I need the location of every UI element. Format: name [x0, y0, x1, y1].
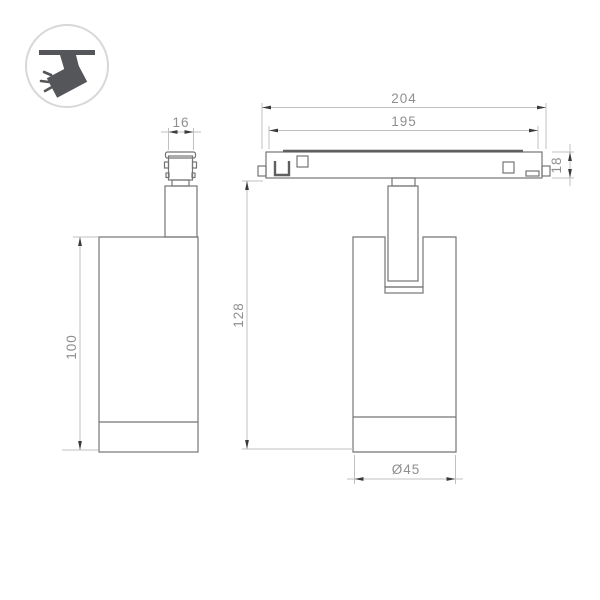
dim-body-height: 100 [62, 237, 98, 450]
fork-yoke [385, 287, 423, 293]
arrowhead [245, 440, 249, 449]
dim-track-depth: 16 [161, 115, 201, 150]
logo-badge [26, 25, 108, 107]
dim-label: 195 [391, 114, 417, 129]
hole-left [297, 156, 308, 167]
spring-clip [275, 161, 289, 175]
arrowhead [269, 129, 278, 133]
dim-label: 204 [391, 91, 417, 106]
lamp-body [99, 237, 198, 452]
side-view [99, 152, 198, 452]
dim-body-diameter: Ø45 [347, 455, 463, 484]
adapter-lug-right [192, 173, 195, 178]
front-view [258, 151, 550, 452]
arrowhead [169, 130, 178, 134]
drawing-page: 16 204 195 18 128 [0, 0, 600, 600]
dim-track-height: 18 [549, 144, 574, 186]
adapter-clip-right [193, 162, 197, 168]
icon-track-bar [39, 50, 95, 55]
arrowhead [529, 129, 538, 133]
arm-stem [165, 186, 197, 237]
dim-track-length-body: 195 [269, 114, 538, 149]
arrowhead [568, 152, 572, 161]
end-tab-left [258, 166, 266, 176]
dim-label: Ø45 [392, 462, 421, 477]
adapter-clip-left [165, 162, 169, 168]
pivot-connector [392, 178, 415, 186]
adapter-box [169, 156, 193, 180]
icon-light-ray [41, 81, 49, 82]
arrowhead [78, 237, 82, 246]
dim-label: 18 [549, 156, 564, 173]
arm-stem [388, 186, 418, 281]
neck [172, 180, 189, 186]
adapter-lug-left [166, 173, 169, 178]
arrowhead [537, 106, 546, 110]
arrowhead [355, 477, 364, 481]
dim-label: 16 [172, 115, 189, 130]
dim-overall-height: 128 [231, 181, 353, 449]
technical-drawing-canvas: 16 204 195 18 128 [0, 0, 600, 600]
arrowhead [447, 477, 456, 481]
dim-label: 100 [64, 334, 79, 360]
arrowhead [568, 169, 572, 178]
arrowhead [262, 106, 271, 110]
hole-right [503, 162, 514, 173]
arrowhead [245, 181, 249, 190]
dim-label: 128 [231, 302, 246, 328]
arrowhead [78, 441, 82, 450]
lamp-body [353, 237, 456, 452]
adapter-cap [166, 152, 196, 158]
vent-slot [526, 171, 539, 176]
arrowhead [185, 130, 194, 134]
